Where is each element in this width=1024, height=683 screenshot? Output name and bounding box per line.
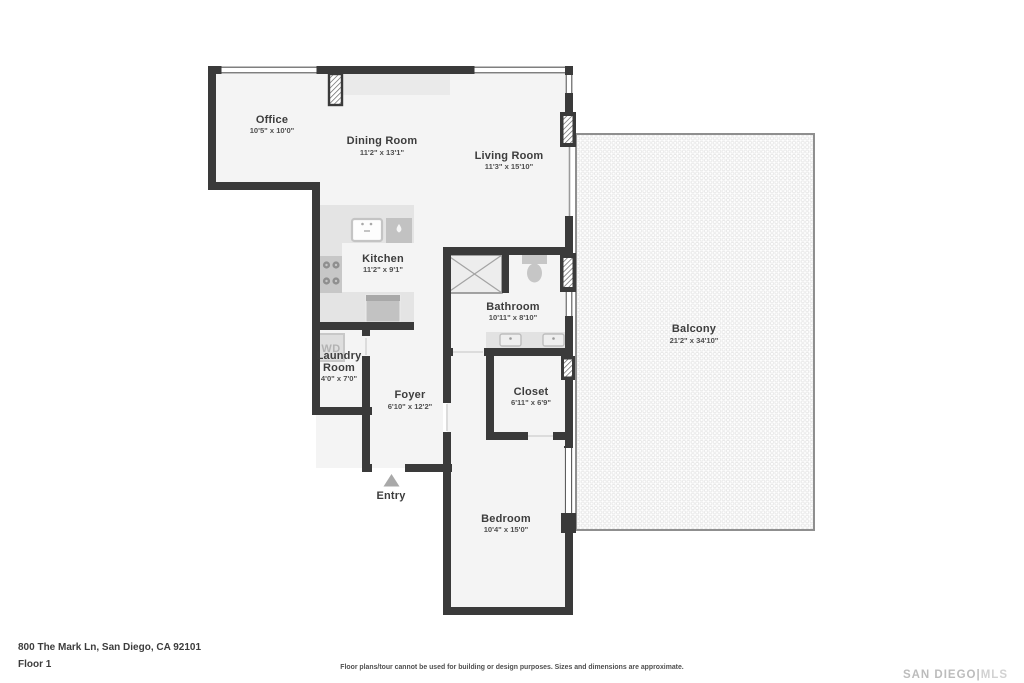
entry-arrow-icon	[384, 474, 400, 487]
shower-icon	[447, 255, 502, 293]
foyer-label: Foyer	[395, 389, 426, 401]
stove-icon	[320, 256, 342, 293]
dining-label: Dining Room	[347, 135, 418, 147]
balcony-dims: 21'2" x 34'10"	[670, 336, 719, 345]
laundry-dims: 4'0" x 7'0"	[321, 374, 358, 383]
bathroom-label: Bathroom	[486, 301, 540, 313]
floor-plan-svg: WD	[0, 0, 1024, 683]
floor-plan-page: WD	[0, 0, 1024, 683]
mls-logo-city: SAN DIEGO	[903, 669, 977, 681]
disclaimer-text: Floor plans/tour cannot be used for buil…	[340, 664, 684, 671]
kitchen-label: Kitchen	[362, 253, 404, 265]
laundry-label-line1: Laundry	[317, 350, 362, 362]
entry-marker: Entry	[376, 474, 406, 502]
balcony-label: Balcony	[672, 323, 717, 335]
wall-chase-hatch	[329, 74, 342, 105]
dining-dims: 11'2" x 13'1"	[360, 148, 405, 157]
mls-logo: SAN DIEGO|MLS	[903, 669, 1008, 681]
bedroom-label: Bedroom	[481, 513, 531, 525]
office-dims: 10'5" x 10'0"	[250, 126, 295, 135]
vanity	[486, 332, 573, 348]
office-label: Office	[256, 114, 288, 126]
refrigerator-icon	[366, 295, 400, 322]
living-label: Living Room	[475, 150, 544, 162]
living-dims: 11'3" x 15'10"	[485, 162, 534, 171]
kitchen-sink-icon	[352, 219, 382, 241]
footer: 800 The Mark Ln, San Diego, CA 92101 Flo…	[18, 642, 1008, 681]
floor-label: Floor 1	[18, 659, 52, 670]
kitchen-dims: 11'2" x 9'1"	[363, 265, 403, 274]
balcony-door-lower-icon	[560, 253, 576, 292]
dining-soffit	[342, 74, 450, 95]
bedroom-window	[564, 446, 573, 513]
balcony-door-upper-icon	[560, 112, 576, 147]
bathroom-side-window	[565, 292, 573, 316]
living-room-top-window	[472, 66, 565, 74]
closet-dims: 6'11" x 6'9"	[511, 398, 551, 407]
dishwasher-icon	[386, 218, 412, 243]
mls-logo-mls: MLS	[981, 669, 1008, 681]
living-room-side-window	[565, 75, 573, 93]
foyer-dims: 6'10" x 12'2"	[388, 402, 433, 411]
bathroom-dims: 10'11" x 8'10"	[489, 313, 538, 322]
laundry-label-line2: Room	[323, 362, 355, 374]
closet-label: Closet	[514, 386, 549, 398]
bedroom-dims: 10'4" x 15'0"	[484, 525, 529, 534]
vanity-sink-left-icon	[500, 334, 521, 346]
vanity-sink-right-icon	[543, 334, 564, 346]
office-dining-window	[219, 66, 319, 74]
entry-label: Entry	[376, 490, 406, 502]
address-text: 800 The Mark Ln, San Diego, CA 92101	[18, 642, 201, 653]
closet-wall-door-icon	[561, 356, 575, 380]
